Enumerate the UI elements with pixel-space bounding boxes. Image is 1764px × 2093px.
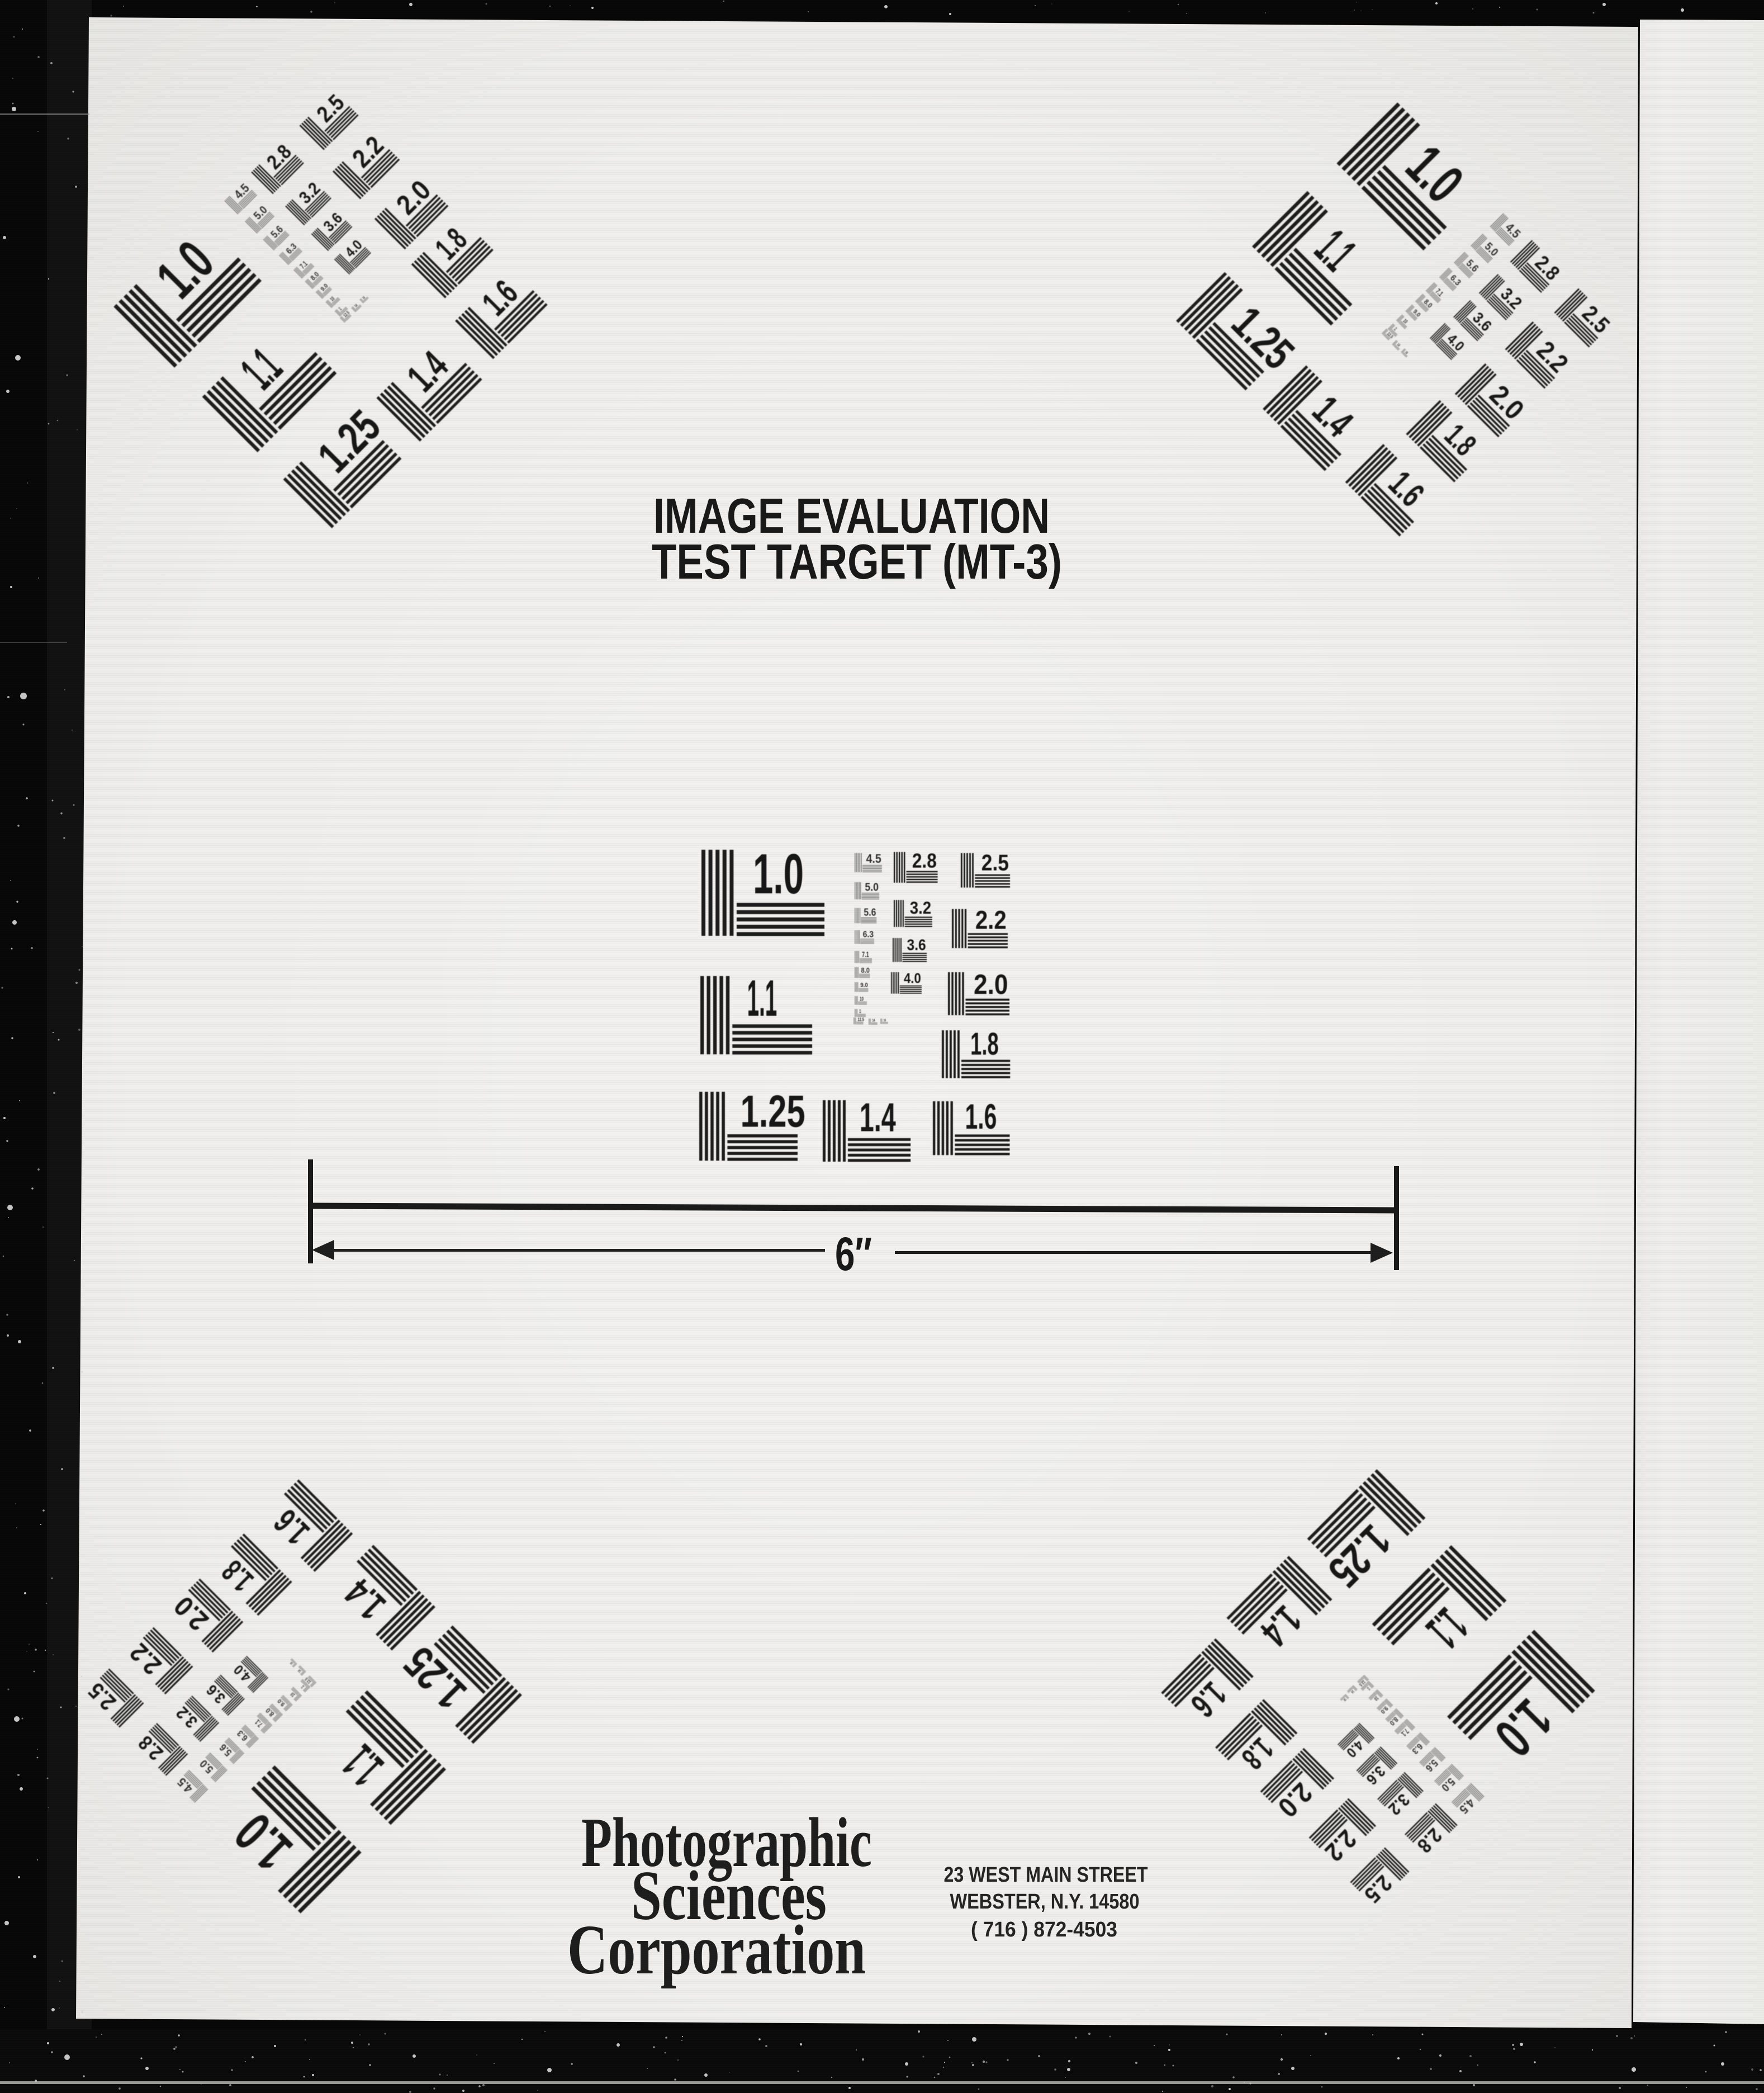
- svg-text:TEST TARGET (MT-3): TEST TARGET (MT-3): [652, 534, 1062, 589]
- svg-text:( 716 ) 872-4503: ( 716 ) 872-4503: [971, 1918, 1117, 1942]
- svg-text:23 WEST MAIN STREET: 23 WEST MAIN STREET: [944, 1863, 1148, 1887]
- svg-text:6″: 6″: [835, 1228, 872, 1280]
- svg-text:WEBSTER, N.Y. 14580: WEBSTER, N.Y. 14580: [950, 1890, 1140, 1914]
- svg-text:Corporation: Corporation: [567, 1911, 866, 1989]
